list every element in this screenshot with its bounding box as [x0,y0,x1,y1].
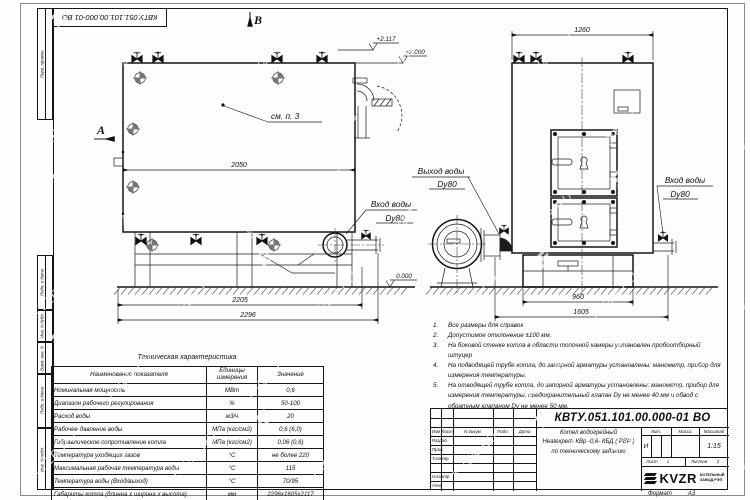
water-inlet-right-dn: Dy80 [670,189,690,199]
dim-2205: 2205 [231,297,248,304]
boiler-drawing: 2050 2205 2296 1260 960 1605 А В см. п. … [0,0,750,500]
water-inlet-left-label: Вход воды [371,199,411,209]
datum-marks [126,71,285,252]
dim-2050: 2050 [230,162,247,169]
dim-2296: 2296 [239,312,256,319]
see-note-label: см. п. 3 [271,111,300,121]
ground-hatching [114,288,712,295]
water-inlet-left-dn: Dy80 [385,213,405,223]
dim-1260: 1260 [574,27,590,34]
drawing-sheet: КВТУ.051.101.00.000-01 ВО Перв. примен. … [0,0,750,500]
dim-1605: 1605 [573,309,589,316]
detail-linework [114,50,676,295]
elevation-2000: +2.000 [405,49,425,56]
water-inlet-right-label: Вход воды [665,175,705,185]
view-arrow-a-label: А [96,123,105,137]
water-outlet-dn: Dy80 [437,179,457,189]
dim-960: 960 [572,294,584,301]
elevation-0000: 0.000 [396,273,412,280]
water-outlet-label: Выход воды [418,166,465,176]
view-arrow-b-label: В [253,13,262,27]
elevation-2117: +2.117 [377,36,396,43]
